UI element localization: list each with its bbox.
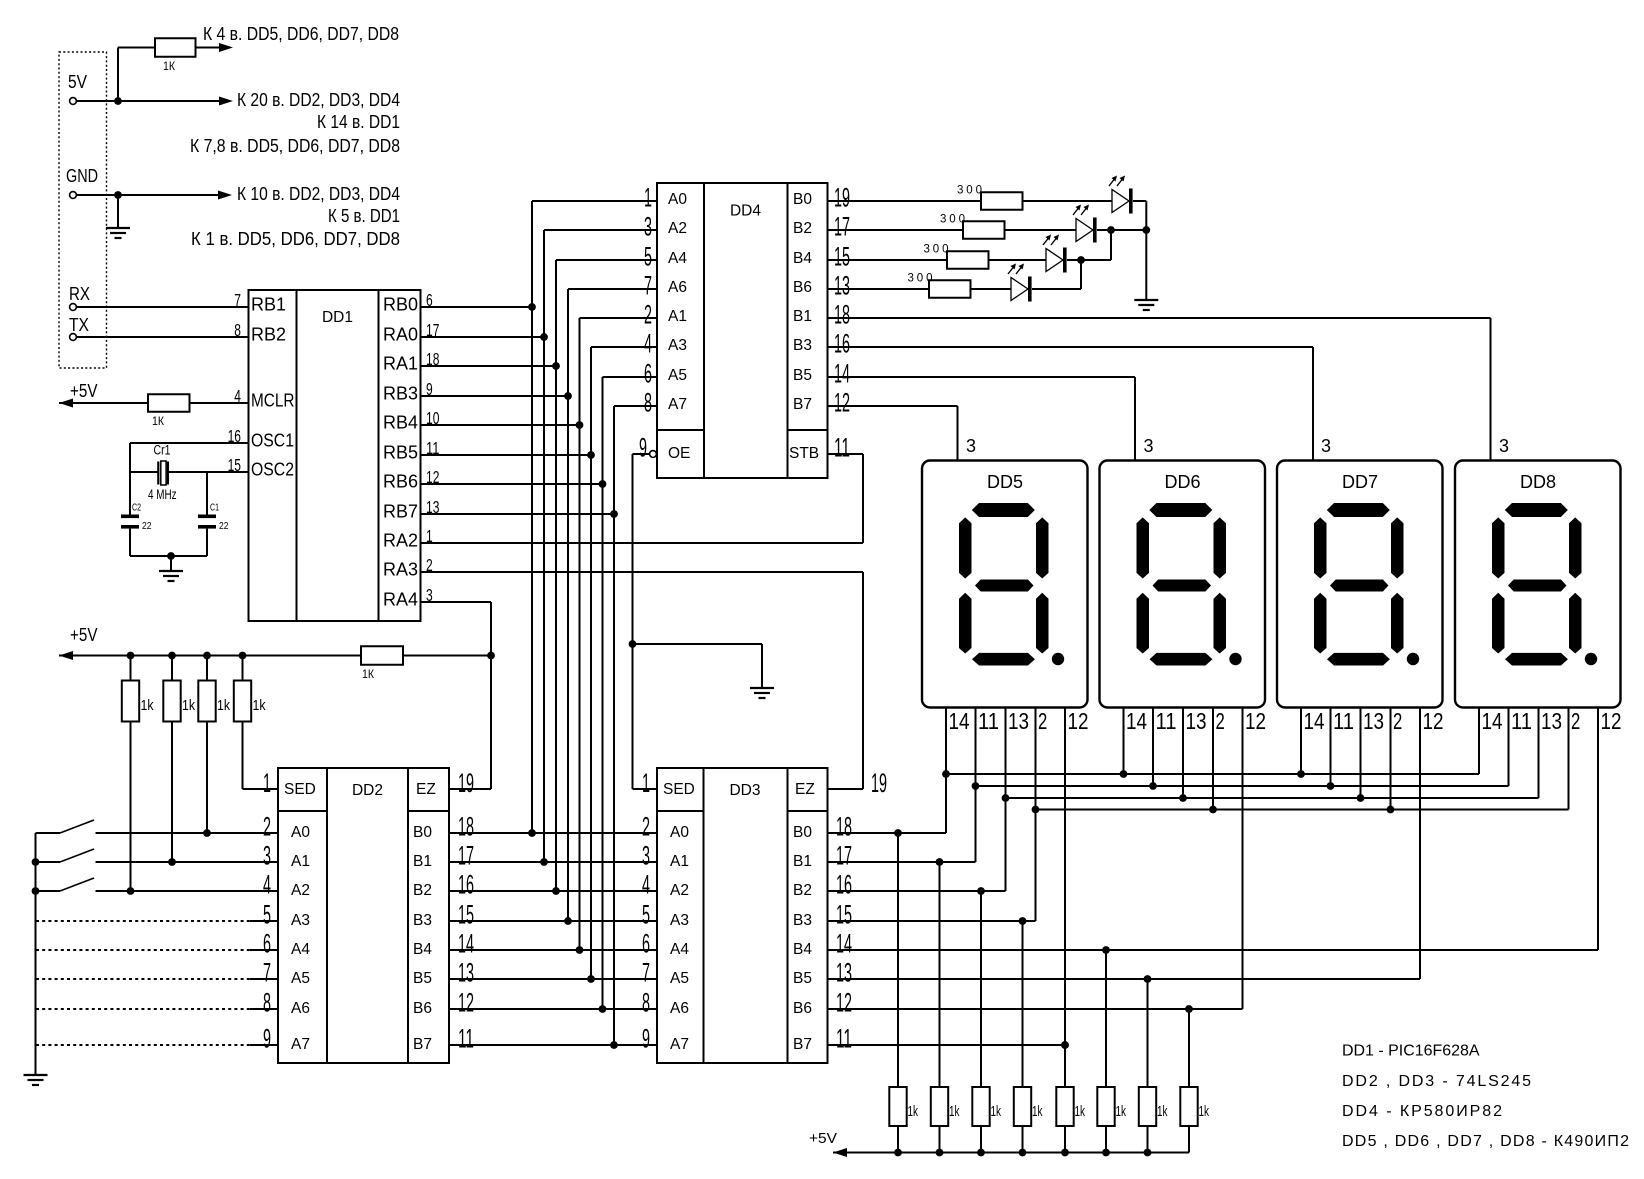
svg-text:9: 9 bbox=[642, 1024, 650, 1054]
svg-text:12: 12 bbox=[1423, 708, 1444, 734]
svg-text:8: 8 bbox=[234, 320, 241, 340]
svg-text:3: 3 bbox=[263, 841, 271, 871]
svg-text:11: 11 bbox=[836, 1024, 852, 1054]
svg-text:4: 4 bbox=[644, 329, 652, 359]
svg-text:RA0: RA0 bbox=[383, 325, 418, 345]
svg-text:14: 14 bbox=[1482, 708, 1503, 734]
svg-text:2: 2 bbox=[642, 812, 650, 842]
svg-text:11: 11 bbox=[834, 433, 850, 463]
svg-text:A1: A1 bbox=[668, 308, 687, 325]
svg-text:A5: A5 bbox=[670, 970, 689, 987]
svg-text:4: 4 bbox=[263, 870, 271, 900]
svg-text:12: 12 bbox=[1068, 708, 1089, 734]
svg-text:16: 16 bbox=[458, 870, 474, 900]
svg-text:SED: SED bbox=[663, 781, 695, 798]
svg-text:К 20 в. DD2, DD3, DD4: К 20 в. DD2, DD3, DD4 bbox=[237, 89, 400, 110]
svg-text:1k: 1k bbox=[949, 1104, 960, 1120]
svg-text:RA3: RA3 bbox=[383, 560, 418, 580]
svg-text:2: 2 bbox=[1038, 708, 1047, 734]
svg-text:B1: B1 bbox=[793, 308, 812, 325]
svg-text:SED: SED bbox=[284, 781, 316, 798]
svg-text:B4: B4 bbox=[793, 941, 812, 958]
svg-text:OSC2: OSC2 bbox=[251, 460, 294, 480]
svg-text:6: 6 bbox=[642, 929, 650, 959]
svg-text:5V: 5V bbox=[68, 71, 88, 92]
svg-text:12: 12 bbox=[834, 388, 850, 418]
svg-text:13: 13 bbox=[1008, 708, 1029, 734]
svg-text:11: 11 bbox=[458, 1024, 474, 1054]
svg-text:A3: A3 bbox=[668, 337, 687, 354]
svg-text:B5: B5 bbox=[413, 970, 432, 987]
svg-text:EZ: EZ bbox=[795, 781, 815, 798]
svg-text:16: 16 bbox=[228, 426, 241, 446]
svg-text:9: 9 bbox=[639, 433, 647, 463]
svg-text:1: 1 bbox=[642, 768, 650, 798]
svg-text:1k: 1k bbox=[1116, 1104, 1127, 1120]
svg-text:2: 2 bbox=[1571, 708, 1580, 734]
svg-text:GND: GND bbox=[66, 165, 98, 186]
svg-text:1k: 1k bbox=[182, 698, 196, 714]
svg-text:1К: 1К bbox=[362, 667, 374, 681]
svg-text:15: 15 bbox=[834, 242, 850, 272]
svg-text:B1: B1 bbox=[413, 853, 432, 870]
svg-text:3: 3 bbox=[644, 212, 652, 242]
svg-text:1: 1 bbox=[263, 768, 271, 798]
svg-text:2: 2 bbox=[1393, 708, 1402, 734]
svg-text:15: 15 bbox=[836, 900, 852, 930]
svg-text:A1: A1 bbox=[670, 853, 689, 870]
svg-text:RA1: RA1 bbox=[383, 354, 418, 374]
svg-text:TX: TX bbox=[69, 314, 89, 335]
svg-text:A5: A5 bbox=[668, 367, 687, 384]
svg-text:13: 13 bbox=[1186, 708, 1207, 734]
svg-text:14: 14 bbox=[1304, 708, 1325, 734]
svg-text:1К: 1К bbox=[163, 59, 175, 73]
svg-text:1k: 1k bbox=[217, 698, 231, 714]
svg-text:300: 300 bbox=[908, 273, 933, 285]
svg-text:11: 11 bbox=[1156, 708, 1177, 734]
svg-text:A2: A2 bbox=[670, 882, 689, 899]
svg-text:RB0: RB0 bbox=[383, 295, 418, 315]
svg-text:К 10 в. DD2, DD3, DD4: К 10 в. DD2, DD3, DD4 bbox=[237, 183, 400, 204]
svg-text:C2: C2 bbox=[132, 502, 141, 514]
svg-text:2: 2 bbox=[263, 812, 271, 842]
svg-text:6: 6 bbox=[644, 359, 652, 389]
svg-text:+5V: +5V bbox=[809, 1131, 837, 1147]
svg-text:5: 5 bbox=[263, 900, 271, 930]
svg-text:B6: B6 bbox=[793, 279, 812, 296]
svg-text:8: 8 bbox=[642, 988, 650, 1018]
svg-text:300: 300 bbox=[957, 185, 982, 197]
svg-text:RA2: RA2 bbox=[383, 531, 418, 551]
svg-text:К 5 в. DD1: К 5 в. DD1 bbox=[328, 205, 400, 226]
svg-text:DD3: DD3 bbox=[729, 782, 760, 799]
svg-text:13: 13 bbox=[458, 958, 474, 988]
svg-text:DD1: DD1 bbox=[322, 309, 353, 326]
svg-text:11: 11 bbox=[1511, 708, 1532, 734]
svg-text:A3: A3 bbox=[291, 912, 310, 929]
svg-text:16: 16 bbox=[836, 870, 852, 900]
svg-text:A4: A4 bbox=[291, 941, 310, 958]
svg-text:MCLR: MCLR bbox=[251, 391, 295, 411]
svg-text:18: 18 bbox=[458, 812, 474, 842]
svg-text:B5: B5 bbox=[793, 367, 812, 384]
svg-text:DD8: DD8 bbox=[1520, 472, 1556, 492]
svg-text:A6: A6 bbox=[670, 1000, 689, 1017]
svg-text:DD5: DD5 bbox=[987, 472, 1023, 492]
svg-text:1k: 1k bbox=[908, 1104, 919, 1120]
svg-text:A7: A7 bbox=[668, 396, 687, 413]
svg-text:+5V: +5V bbox=[70, 624, 98, 645]
svg-text:1k: 1k bbox=[1075, 1104, 1086, 1120]
svg-text:RB7: RB7 bbox=[383, 502, 418, 522]
svg-text:13: 13 bbox=[834, 271, 850, 301]
svg-text:К 14 в. DD1: К 14 в. DD1 bbox=[317, 111, 400, 132]
svg-text:19: 19 bbox=[871, 768, 887, 798]
svg-text:B4: B4 bbox=[413, 941, 432, 958]
svg-text:RB3: RB3 bbox=[383, 384, 418, 404]
svg-text:A4: A4 bbox=[670, 941, 689, 958]
svg-text:12: 12 bbox=[836, 988, 852, 1018]
svg-text:DD1 - PIC16F628A: DD1 - PIC16F628A bbox=[1342, 1043, 1480, 1060]
svg-text:7: 7 bbox=[642, 958, 650, 988]
svg-text:OE: OE bbox=[668, 445, 690, 462]
svg-text:22: 22 bbox=[142, 520, 152, 532]
svg-text:A7: A7 bbox=[670, 1036, 689, 1053]
svg-text:B0: B0 bbox=[413, 824, 432, 841]
svg-text:A7: A7 bbox=[291, 1036, 310, 1053]
svg-text:13: 13 bbox=[836, 958, 852, 988]
svg-text:13: 13 bbox=[1541, 708, 1562, 734]
svg-text:5: 5 bbox=[642, 900, 650, 930]
svg-text:B2: B2 bbox=[793, 220, 812, 237]
svg-text:A6: A6 bbox=[291, 1000, 310, 1017]
svg-text:14: 14 bbox=[949, 708, 970, 734]
svg-text:17: 17 bbox=[458, 841, 474, 871]
svg-text:1К: 1К bbox=[152, 414, 164, 428]
svg-text:1: 1 bbox=[644, 183, 652, 213]
svg-text:4: 4 bbox=[642, 870, 650, 900]
svg-text:4 MHz: 4 MHz bbox=[148, 486, 177, 502]
svg-text:14: 14 bbox=[458, 929, 474, 959]
svg-text:B0: B0 bbox=[793, 191, 812, 208]
svg-text:1k: 1k bbox=[1157, 1104, 1168, 1120]
svg-text:3: 3 bbox=[1321, 436, 1331, 456]
svg-text:RB5: RB5 bbox=[383, 443, 418, 463]
svg-text:15: 15 bbox=[228, 455, 241, 475]
svg-text:22: 22 bbox=[219, 520, 229, 532]
svg-text:8: 8 bbox=[263, 988, 271, 1018]
svg-text:19: 19 bbox=[458, 768, 474, 798]
svg-text:A4: A4 bbox=[668, 250, 687, 267]
svg-text:B7: B7 bbox=[793, 396, 812, 413]
svg-text:A6: A6 bbox=[668, 279, 687, 296]
svg-text:6: 6 bbox=[263, 929, 271, 959]
svg-text:B3: B3 bbox=[413, 912, 432, 929]
svg-text:8: 8 bbox=[644, 388, 652, 418]
svg-text:RB1: RB1 bbox=[251, 295, 286, 315]
svg-text:B6: B6 bbox=[793, 1000, 812, 1017]
svg-text:DD4: DD4 bbox=[730, 203, 761, 220]
svg-text:18: 18 bbox=[834, 300, 850, 330]
svg-text:A1: A1 bbox=[291, 853, 310, 870]
svg-text:9: 9 bbox=[263, 1024, 271, 1054]
svg-text:7: 7 bbox=[263, 958, 271, 988]
svg-text:11: 11 bbox=[1333, 708, 1354, 734]
svg-text:DD4 - КР580ИР82: DD4 - КР580ИР82 bbox=[1342, 1103, 1502, 1120]
svg-text:1k: 1k bbox=[141, 698, 155, 714]
svg-text:3: 3 bbox=[642, 841, 650, 871]
svg-text:OSC1: OSC1 bbox=[251, 431, 294, 451]
svg-text:1k: 1k bbox=[1199, 1104, 1210, 1120]
svg-text:+5V: +5V bbox=[70, 380, 98, 401]
svg-text:3: 3 bbox=[966, 436, 976, 456]
svg-text:300: 300 bbox=[940, 214, 965, 226]
svg-text:19: 19 bbox=[834, 183, 850, 213]
svg-text:A0: A0 bbox=[668, 191, 687, 208]
svg-text:12: 12 bbox=[458, 988, 474, 1018]
svg-text:B3: B3 bbox=[793, 337, 812, 354]
svg-text:RB2: RB2 bbox=[251, 325, 286, 345]
svg-text:EZ: EZ bbox=[416, 781, 436, 798]
svg-text:4: 4 bbox=[234, 386, 241, 406]
svg-text:RA4: RA4 bbox=[383, 590, 418, 610]
svg-text:B1: B1 bbox=[793, 853, 812, 870]
svg-text:1k: 1k bbox=[1032, 1104, 1043, 1120]
svg-text:B2: B2 bbox=[413, 882, 432, 899]
svg-text:300: 300 bbox=[924, 244, 949, 256]
svg-text:2: 2 bbox=[644, 300, 652, 330]
svg-text:A5: A5 bbox=[291, 970, 310, 987]
svg-text:14: 14 bbox=[834, 359, 850, 389]
svg-text:DD2: DD2 bbox=[352, 782, 383, 799]
svg-text:B7: B7 bbox=[413, 1036, 432, 1053]
svg-text:16: 16 bbox=[834, 329, 850, 359]
svg-text:1k: 1k bbox=[991, 1104, 1002, 1120]
svg-text:17: 17 bbox=[836, 841, 852, 871]
svg-text:B4: B4 bbox=[793, 250, 812, 267]
svg-text:К 1 в. DD5, DD6, DD7, DD8: К 1 в. DD5, DD6, DD7, DD8 bbox=[191, 228, 400, 249]
svg-text:3: 3 bbox=[1144, 436, 1154, 456]
svg-text:13: 13 bbox=[1363, 708, 1384, 734]
svg-text:B6: B6 bbox=[413, 1000, 432, 1017]
svg-text:C1: C1 bbox=[210, 502, 219, 514]
svg-text:12: 12 bbox=[1601, 708, 1622, 734]
svg-text:DD7: DD7 bbox=[1342, 472, 1378, 492]
svg-text:11: 11 bbox=[978, 708, 999, 734]
svg-text:1k: 1k bbox=[253, 698, 267, 714]
svg-text:18: 18 bbox=[836, 812, 852, 842]
svg-text:14: 14 bbox=[1126, 708, 1147, 734]
svg-text:A0: A0 bbox=[670, 824, 689, 841]
svg-text:B3: B3 bbox=[793, 912, 812, 929]
svg-text:17: 17 bbox=[834, 212, 850, 242]
svg-text:A2: A2 bbox=[668, 220, 687, 237]
svg-text:15: 15 bbox=[458, 900, 474, 930]
svg-text:DD2 , DD3 - 74LS245: DD2 , DD3 - 74LS245 bbox=[1342, 1073, 1531, 1090]
svg-text:3: 3 bbox=[1499, 436, 1509, 456]
svg-text:RB6: RB6 bbox=[383, 472, 418, 492]
svg-text:RX: RX bbox=[69, 283, 90, 304]
svg-text:Cr1: Cr1 bbox=[154, 443, 171, 458]
svg-text:A2: A2 bbox=[291, 882, 310, 899]
svg-text:B0: B0 bbox=[793, 824, 812, 841]
svg-text:2: 2 bbox=[1216, 708, 1225, 734]
svg-text:A3: A3 bbox=[670, 912, 689, 929]
svg-text:DD6: DD6 bbox=[1164, 472, 1200, 492]
svg-text:RB4: RB4 bbox=[383, 413, 418, 433]
svg-text:5: 5 bbox=[644, 242, 652, 272]
svg-text:К 7,8 в. DD5, DD6, DD7, DD8: К 7,8 в. DD5, DD6, DD7, DD8 bbox=[190, 135, 400, 156]
svg-text:К 4 в. DD5, DD6, DD7, DD8: К 4 в. DD5, DD6, DD7, DD8 bbox=[203, 23, 399, 44]
svg-text:B2: B2 bbox=[793, 882, 812, 899]
svg-text:12: 12 bbox=[1245, 708, 1266, 734]
svg-text:B5: B5 bbox=[793, 970, 812, 987]
svg-text:A0: A0 bbox=[291, 824, 310, 841]
svg-text:DD5 , DD6 , DD7 , DD8 - К490ИП: DD5 , DD6 , DD7 , DD8 - К490ИП2 bbox=[1342, 1133, 1629, 1150]
svg-text:7: 7 bbox=[644, 271, 652, 301]
svg-text:7: 7 bbox=[234, 290, 241, 310]
svg-text:STB: STB bbox=[789, 445, 819, 462]
svg-text:B7: B7 bbox=[793, 1036, 812, 1053]
svg-text:14: 14 bbox=[836, 929, 852, 959]
